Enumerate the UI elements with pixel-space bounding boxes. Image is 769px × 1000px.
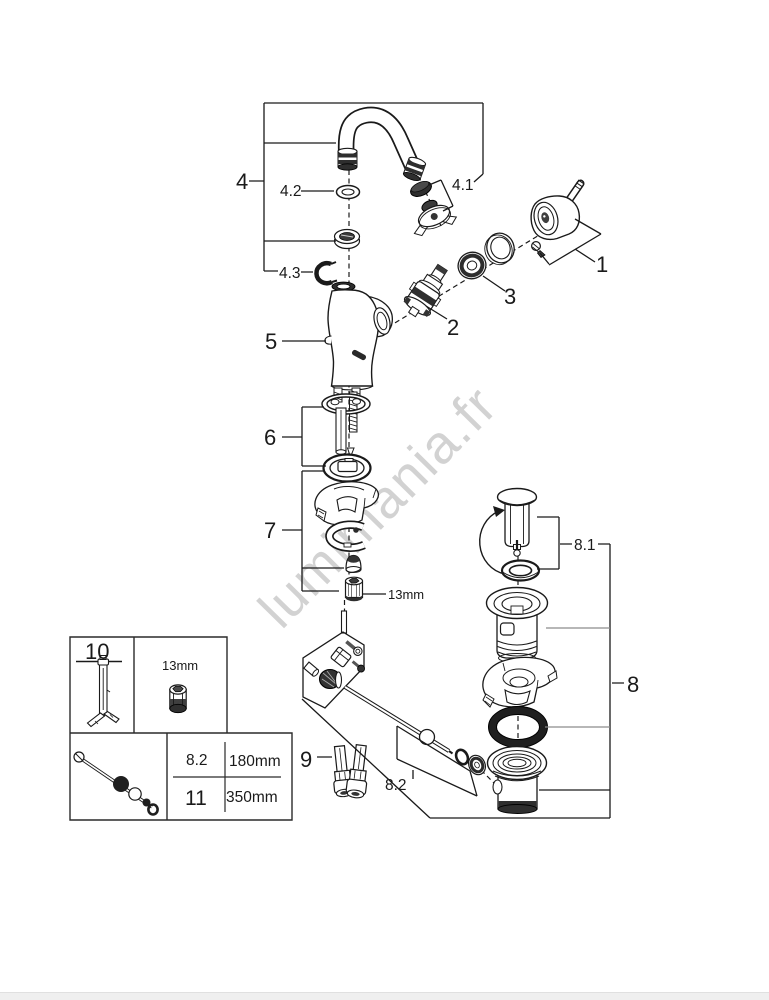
- tool-ref-label: 10: [85, 639, 109, 664]
- drain-wedge-drawing: [483, 657, 557, 707]
- spout-base-collar: [338, 148, 357, 170]
- callout-9: 9: [300, 747, 312, 772]
- keyhole-washer: [324, 455, 371, 482]
- exploded-parts-diagram: 4 4.2 4.3 4.1 1 3 2 5 6 7 13mm 8.1 8 9 8…: [0, 0, 769, 1000]
- horseshoe-washer-drawing: [329, 525, 364, 548]
- clamp-wedge-drawing: [315, 482, 378, 525]
- supply-hoses-drawing: [330, 744, 371, 799]
- socket-size-label: 13mm: [162, 658, 198, 673]
- table-ref-1: 8.2: [186, 752, 208, 769]
- hex-nut-drawing: [346, 577, 363, 601]
- o-ring-4-2: [337, 186, 360, 199]
- table-length-2: 350mm: [226, 789, 278, 806]
- callout-7: 7: [264, 518, 276, 543]
- callout-1: 1: [596, 252, 608, 277]
- callout-3: 3: [504, 284, 516, 309]
- callout-2: 2: [447, 315, 459, 340]
- nut-size-label: 13mm: [388, 587, 424, 602]
- flow-restrictor: [335, 230, 360, 249]
- linkage-box-drawing: [303, 632, 366, 708]
- callout-8-1: 8.1: [574, 537, 596, 554]
- pivot-pin-drawing: [342, 611, 347, 633]
- socket-nut-drawing: [170, 685, 186, 713]
- callout-8: 8: [627, 672, 639, 697]
- rod-kit-drawing: [74, 752, 158, 815]
- retaining-clip-4-3: [316, 262, 337, 283]
- aerator-seal: [408, 179, 433, 200]
- handle-drawing: [530, 180, 584, 258]
- dome-nut-drawing: [346, 556, 361, 573]
- mounting-tool-drawing: [88, 656, 120, 727]
- callout-4-2: 4.2: [280, 183, 302, 200]
- drain-upper-body-drawing: [487, 588, 548, 663]
- callout-4-3: 4.3: [279, 265, 301, 282]
- aerator-drawing: [405, 179, 459, 240]
- mounting-set-drawing: [322, 388, 371, 482]
- set-screw-drawing: [532, 242, 545, 258]
- diagram-canvas: lumimania.fr: [0, 0, 769, 1000]
- page-footer-strip: [0, 992, 769, 1000]
- faucet-body-drawing: [325, 290, 393, 390]
- popup-rod-drawing: [345, 687, 488, 777]
- callout-4-1: 4.1: [452, 177, 474, 194]
- plug-seal-ring: [502, 561, 539, 581]
- callout-6: 6: [264, 425, 276, 450]
- callout-8-2: 8.2: [385, 777, 407, 794]
- table-length-1: 180mm: [229, 753, 281, 770]
- callout-5: 5: [265, 329, 277, 354]
- callout-4: 4: [236, 169, 248, 194]
- rotate-arrow-icon: [480, 511, 505, 574]
- table-ref-2: 11: [185, 787, 207, 810]
- callout-labels: 4 4.2 4.3 4.1 1 3 2 5 6 7 13mm 8.1 8 9 8…: [236, 169, 639, 794]
- spout-drawing: [338, 115, 427, 182]
- drain-lower-body-drawing: [488, 747, 547, 814]
